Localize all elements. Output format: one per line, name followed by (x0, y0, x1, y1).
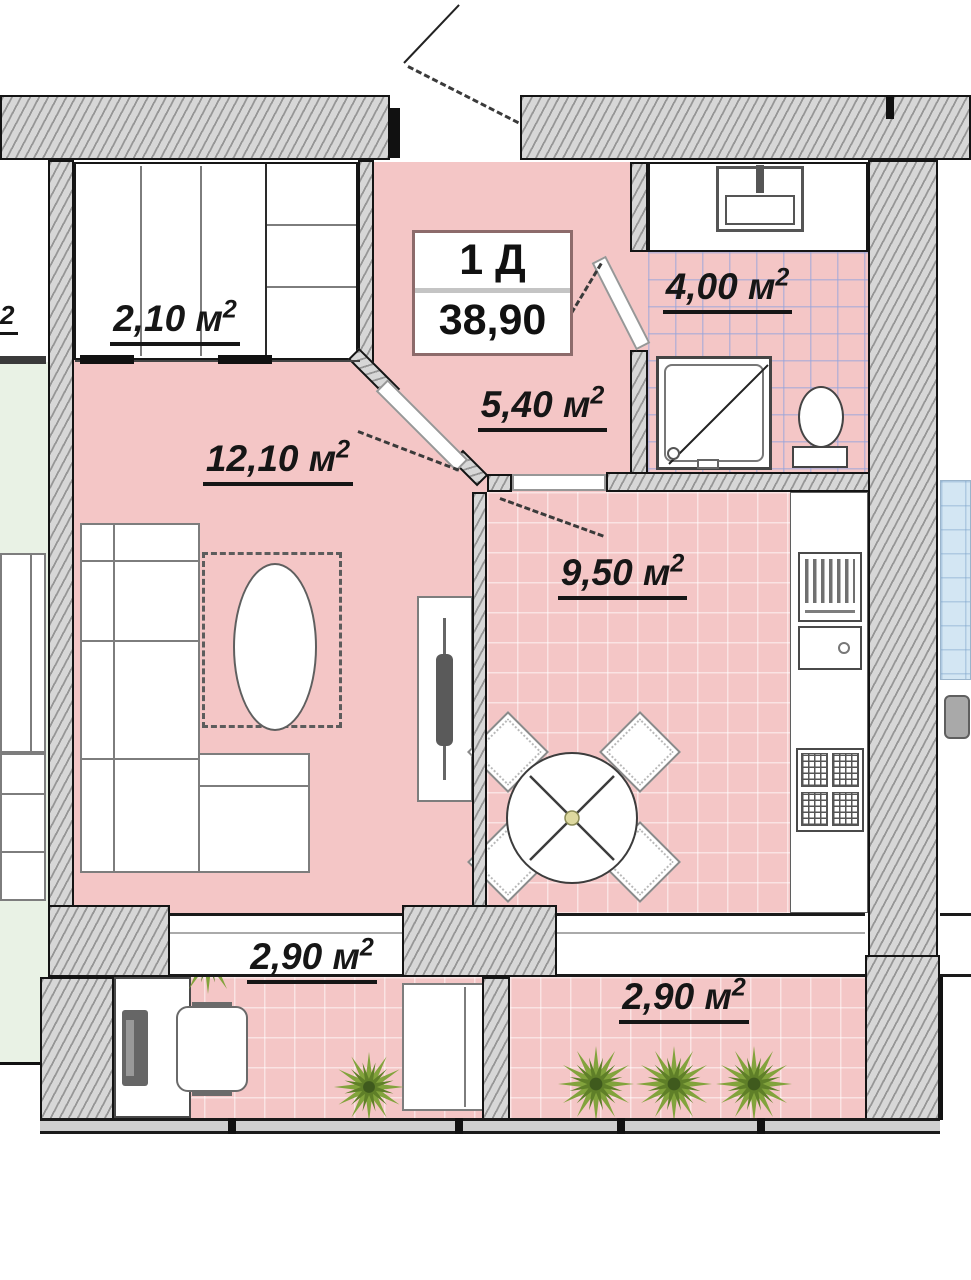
rail-tick (617, 1118, 625, 1134)
wall-tick (886, 95, 894, 119)
room-label-closet: 2,10 м2 (85, 298, 265, 346)
entrance-door-swing (407, 65, 519, 124)
monitor-screen (126, 1020, 134, 1076)
washbasin-faucet (756, 165, 764, 193)
washbasin (716, 166, 804, 232)
adjacent-right-fixture (944, 695, 970, 739)
chaise-line (200, 785, 308, 787)
closet-slider-panel (218, 355, 272, 364)
room-label-balcony-left: 2,90 м2 (222, 936, 402, 984)
balcony-bench (402, 983, 484, 1111)
room-label-bathroom: 4,00 м2 (640, 266, 815, 314)
hall-wardrobe (265, 164, 356, 358)
cabinet-shelf-line (2, 793, 44, 795)
stove (796, 748, 864, 832)
wall-pier-bottom-left-lower (40, 977, 114, 1130)
stove-burner (801, 753, 828, 787)
stove-burner (832, 753, 859, 787)
toilet-bowl (798, 386, 844, 448)
shower-faucet (697, 459, 719, 469)
stove-burner (832, 792, 859, 826)
plant-icon (714, 1044, 794, 1124)
adjacent-left-area-fragment: 2 (0, 300, 18, 335)
wall-living-kitchen-partition (472, 492, 487, 913)
wall-pier-balcony-middle (402, 905, 557, 977)
kitchen-sink (798, 626, 862, 670)
stove-burner (801, 792, 828, 826)
entrance-door-leaf-line (403, 4, 460, 63)
bench-line (464, 987, 466, 1107)
unit-title-box: 1 Д 38,90 (412, 230, 573, 356)
adjacent-left-door-line (0, 356, 46, 364)
sofa-back-line (113, 525, 115, 871)
coffee-table (233, 563, 317, 731)
chair-armrest (192, 1002, 232, 1008)
adjacent-left-wardrobe (0, 553, 46, 753)
chair-armrest (192, 1090, 232, 1096)
sofa (80, 523, 200, 873)
shower-drain (667, 447, 680, 460)
sofa-chaise (198, 753, 310, 873)
room-label-hallway: 5,40 м2 (455, 384, 630, 432)
unit-number: 1 Д (415, 233, 570, 288)
wall-hall-kitchen-jamb (487, 474, 512, 492)
washbasin-bowl (725, 195, 795, 225)
wall-balcony-divider (482, 977, 510, 1130)
unit-total-area: 38,90 (415, 293, 570, 348)
adjacent-left-cabinet (0, 753, 46, 901)
plant-icon (556, 1044, 636, 1124)
shower (656, 356, 772, 470)
rail-tick (757, 1118, 765, 1134)
wall-pier-bottom-right (865, 955, 940, 1130)
table-cross-icon (508, 754, 636, 882)
wall-bathroom-bottom (606, 472, 870, 492)
entrance-door-jamb (388, 108, 400, 158)
fridge-handle (805, 610, 855, 613)
floor-plan: 2 (0, 0, 971, 1280)
office-chair (176, 1006, 248, 1092)
wall-bathroom-left-top (630, 162, 648, 252)
adjacent-right-window (940, 913, 971, 977)
fridge (798, 552, 862, 622)
tv (436, 654, 453, 746)
kitchen-door-leaf (512, 474, 606, 491)
wall-top-right (520, 95, 971, 160)
rail-tick (455, 1118, 463, 1134)
adjacent-right-balcony (940, 977, 971, 1120)
wall-left (48, 160, 74, 913)
adjacent-right-bath-floor (940, 480, 971, 680)
shower-tray (664, 364, 764, 462)
wardrobe-divider-line (30, 555, 32, 751)
dining-table (506, 752, 638, 884)
room-label-balcony-right: 2,90 м2 (594, 976, 774, 1024)
plant-icon (634, 1044, 714, 1124)
fridge-vents (805, 559, 855, 603)
hall-wardrobe-shelf (267, 286, 356, 288)
kitchen-balcony-window (557, 913, 865, 977)
wall-top-left (0, 95, 390, 160)
toilet-tank (792, 446, 848, 468)
wall-pier-bottom-left-upper (48, 905, 170, 977)
desk-monitor (122, 1010, 148, 1086)
wall-closet-right (358, 160, 374, 364)
hall-wardrobe-shelf (267, 224, 356, 226)
wall-bathroom-left-bottom (630, 350, 648, 474)
rail-tick (228, 1118, 236, 1134)
wall-right (868, 160, 938, 960)
closet-slider-panel (80, 355, 134, 364)
balcony-glazing-rail (40, 1118, 940, 1134)
window-sill-line (557, 932, 865, 934)
sink-drain (838, 642, 850, 654)
room-label-kitchen: 9,50 м2 (535, 552, 710, 600)
sofa-cushion-line (82, 758, 198, 760)
plant-icon (332, 1050, 406, 1124)
room-label-living-room: 12,10 м2 (183, 438, 373, 486)
cabinet-shelf-line (2, 851, 44, 853)
sofa-cushion-line (82, 640, 198, 642)
sofa-cushion-line (82, 560, 198, 562)
